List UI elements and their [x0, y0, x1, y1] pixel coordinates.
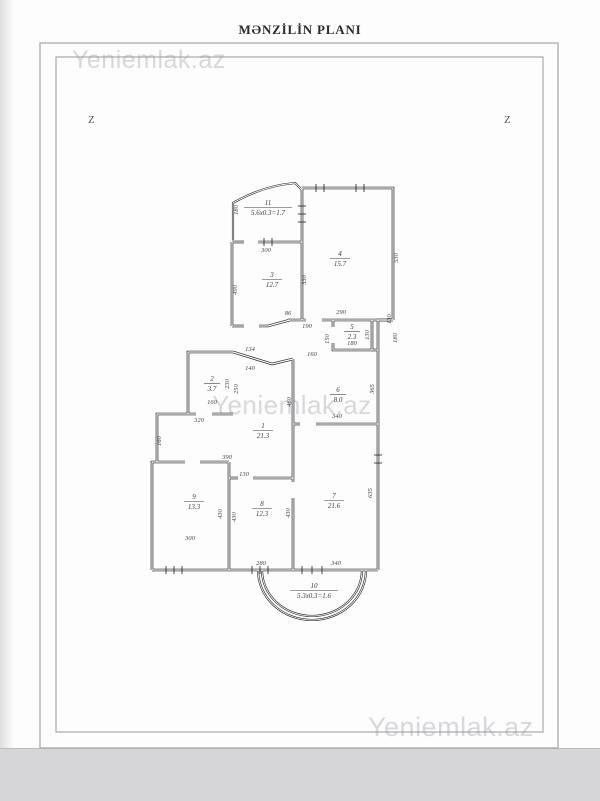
room-label: 121.3	[253, 422, 273, 440]
floor-plan: 121.323.7312.7415.752.368.0721.6812.3913…	[0, 0, 600, 800]
room-label: 52.3	[344, 323, 360, 341]
dimension-label: 190	[302, 323, 313, 330]
room-area: 12.3	[256, 510, 269, 518]
room-label: 68.0	[330, 386, 346, 404]
room-area: 21.3	[257, 432, 270, 440]
wall-path	[233, 352, 293, 364]
room-area: 8.0	[334, 396, 343, 404]
room-area: 12.7	[266, 281, 279, 289]
dimension-label: 134	[245, 346, 256, 353]
walls	[152, 183, 393, 620]
dimension-label: 230	[224, 378, 231, 389]
room-label: 913.3	[184, 493, 204, 511]
room-area: 3.7	[207, 385, 217, 393]
room-label: 115.6x0.3=1.7	[244, 199, 292, 217]
dimension-label: 365	[369, 383, 376, 395]
room-label: 721.6	[324, 492, 344, 510]
dimension-label: 300	[260, 247, 272, 254]
dimension-label: 140	[245, 365, 256, 372]
room-area: 13.3	[188, 503, 201, 511]
wall-inner-line	[302, 188, 393, 320]
dimension-label: 180	[392, 332, 399, 343]
dimension-label: 160	[207, 399, 218, 406]
inner-frame	[56, 57, 543, 732]
dimension-label: 530	[393, 252, 400, 263]
room-number: 1	[261, 422, 265, 430]
room-label: 105.3x0.3=1.6	[290, 582, 338, 600]
room-number: 4	[338, 250, 342, 258]
room-number: 8	[260, 500, 264, 508]
dimension-label: 430	[231, 511, 238, 522]
dimension-label: 280	[256, 560, 267, 567]
room-area: 5.3x0.3=1.6	[297, 592, 332, 600]
dimension-label: 86	[285, 310, 292, 317]
wall-inner-line	[378, 320, 393, 570]
room-number: 5	[350, 323, 354, 331]
room-label: 812.3	[252, 500, 272, 518]
wall-path	[152, 462, 157, 570]
dimension-label: 430	[217, 508, 224, 519]
dimension-label: 430	[285, 507, 292, 518]
room-label: 23.7	[204, 375, 220, 393]
dimension-label: 320	[193, 417, 205, 424]
room-number: 11	[265, 199, 271, 207]
room-number: 2	[210, 375, 214, 383]
room-number: 10	[311, 582, 319, 590]
dimension-label: 460	[286, 396, 293, 407]
dimension-label: 340	[330, 560, 342, 567]
dimension-label: 300	[184, 535, 196, 542]
room-label: 415.7	[330, 250, 350, 268]
room-area: 5.6x0.3=1.7	[251, 209, 286, 217]
dimension-label: 150	[324, 333, 331, 344]
dimension-labels: 3008629019016013414016032039013030028034…	[156, 204, 400, 567]
dimension-label: 160	[307, 351, 318, 358]
dimension-label: 340	[331, 413, 343, 420]
dimension-label: 490	[232, 284, 239, 295]
room-label: 312.7	[262, 271, 282, 289]
room-number: 6	[336, 386, 340, 394]
dimension-label: 250	[233, 383, 240, 394]
dimension-label: 160	[156, 435, 163, 446]
room-area: 15.7	[334, 260, 347, 268]
wall-path	[378, 320, 393, 570]
dimension-label: 290	[336, 309, 347, 316]
outer-frame	[40, 43, 558, 748]
wall-path	[302, 188, 393, 320]
dimension-label: 130	[364, 329, 371, 340]
room-number: 7	[332, 492, 336, 500]
room-number: 3	[269, 271, 274, 279]
dimension-label: 130	[239, 471, 250, 478]
dimension-label: 635	[367, 487, 374, 498]
dimension-label: 180	[347, 340, 358, 347]
room-number: 9	[192, 493, 196, 501]
dimension-label: 390	[221, 454, 233, 461]
dimension-label: 330	[301, 274, 308, 286]
dimension-label: 180	[233, 204, 240, 215]
room-area: 21.6	[328, 502, 341, 510]
dimension-label: 130	[386, 313, 393, 324]
